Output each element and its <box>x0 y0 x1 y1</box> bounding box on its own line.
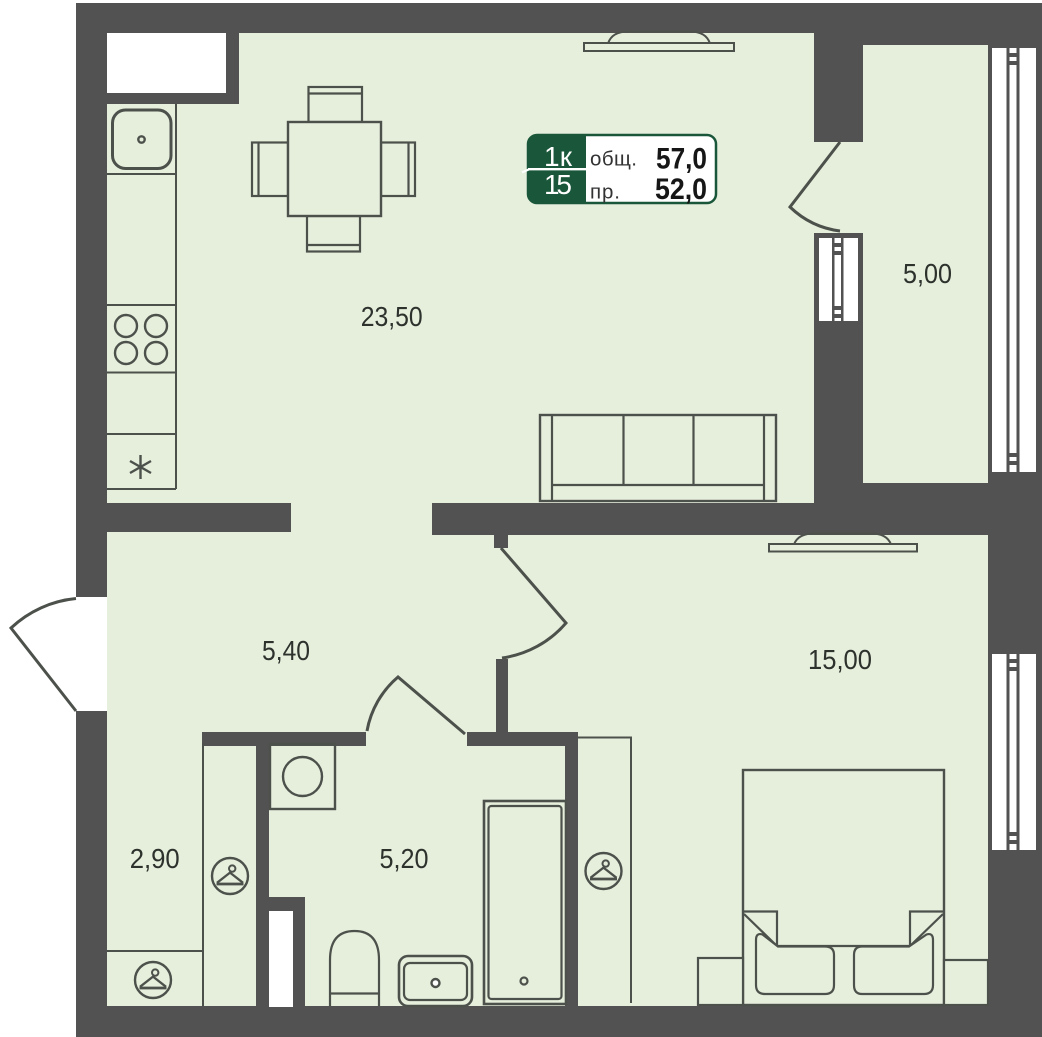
svg-text:52,0: 52,0 <box>655 173 707 206</box>
svg-text:1к: 1к <box>544 141 573 172</box>
svg-text:общ.: общ. <box>590 148 637 171</box>
svg-text:пр.: пр. <box>590 181 620 204</box>
svg-text:5,20: 5,20 <box>380 843 429 874</box>
svg-text:5,40: 5,40 <box>262 635 310 666</box>
svg-text:23,50: 23,50 <box>361 301 423 332</box>
svg-text:15,00: 15,00 <box>808 644 872 675</box>
svg-text:57,0: 57,0 <box>656 143 707 176</box>
svg-text:15: 15 <box>544 169 572 200</box>
svg-text:5,00: 5,00 <box>903 258 952 289</box>
svg-text:2,90: 2,90 <box>130 843 180 874</box>
